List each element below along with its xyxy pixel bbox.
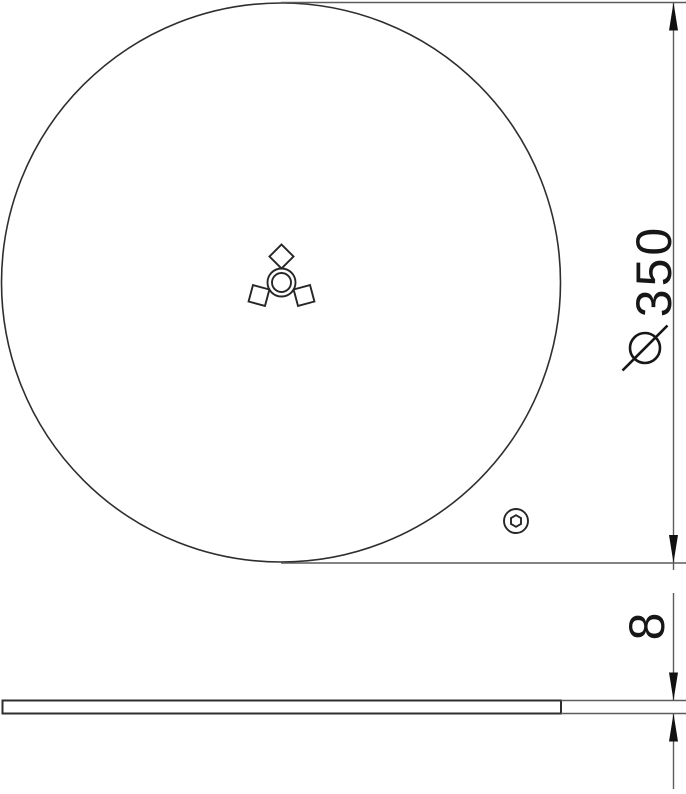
arrow-up-icon: [669, 3, 678, 31]
hex-socket-screw: [504, 509, 528, 533]
arrow-up-icon: [669, 714, 678, 742]
diameter-dimension: 350: [623, 3, 683, 571]
diameter-symbol-icon: [623, 326, 668, 371]
hub-inner-circle: [272, 273, 291, 292]
thickness-dimension-value: 8: [619, 610, 675, 641]
thickness-dimension: 8: [619, 593, 678, 789]
diameter-dimension-value: 350: [626, 225, 682, 317]
screw-hex-socket: [511, 515, 521, 527]
arrow-down-icon: [669, 535, 678, 563]
arrow-down-icon: [669, 673, 678, 701]
square-cutout-lower-left: [243, 279, 276, 312]
screw-head-circle: [504, 509, 528, 533]
technical-drawing: 350 8: [0, 0, 686, 794]
drawing-svg: 350 8: [0, 0, 686, 794]
square-cutout-lower-right: [288, 279, 321, 312]
center-hub: [243, 244, 321, 311]
side-view-plate: [3, 701, 562, 714]
square-cutout-top: [269, 244, 293, 268]
disc-outline: [2, 3, 561, 562]
